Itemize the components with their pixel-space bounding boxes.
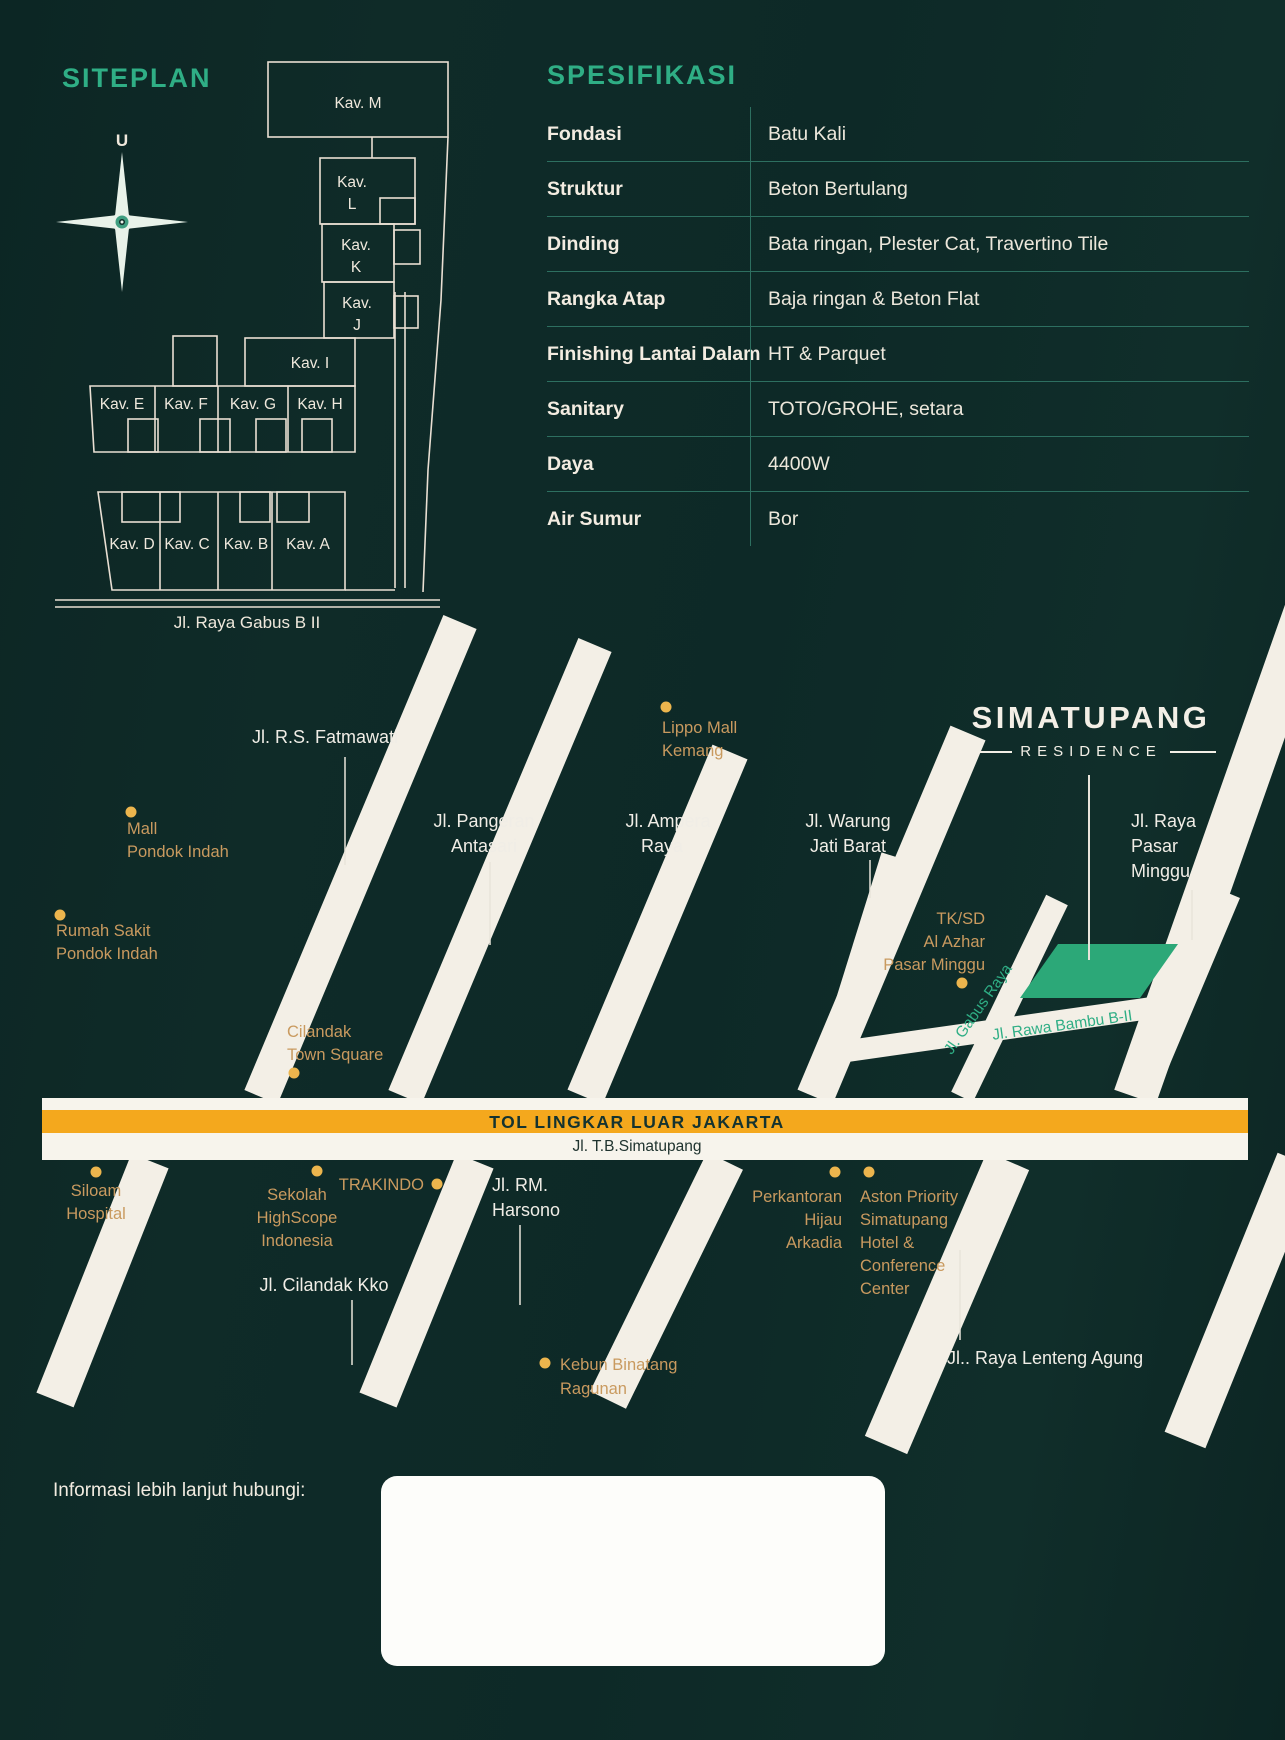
- spec-row-dinding: Dinding Bata ringan, Plester Cat, Traver…: [547, 217, 1249, 272]
- spec-label: Struktur: [547, 178, 750, 201]
- poi-dot-tksd: [957, 978, 968, 989]
- spec-section: SPESIFIKASI Fondasi Batu Kali Struktur B…: [547, 60, 1249, 546]
- label-pasar-minggu-1: Jl. Raya: [1131, 811, 1197, 831]
- label-highscope-2: HighScope: [257, 1209, 338, 1227]
- plot-label-e: Kav. E: [100, 396, 145, 413]
- plot-label-k2: K: [351, 259, 362, 276]
- spec-label: Sanitary: [547, 398, 750, 421]
- spec-row-air-sumur: Air Sumur Bor: [547, 492, 1249, 546]
- brand-name: SIMATUPANG: [952, 700, 1230, 736]
- spec-value: Bata ringan, Plester Cat, Travertino Til…: [750, 217, 1249, 271]
- label-perkantoran-3: Arkadia: [786, 1234, 843, 1252]
- label-tksd-2: Al Azhar: [924, 933, 986, 951]
- label-antasari-1: Jl. Pangeran: [433, 811, 534, 831]
- poi-dot-highscope: [312, 1166, 323, 1177]
- spec-row-fondasi: Fondasi Batu Kali: [547, 107, 1249, 162]
- toll-road-street: Jl. T.B.Simatupang: [573, 1138, 702, 1155]
- road-cilandak-kko: [378, 1161, 475, 1400]
- poi-dot-perkantoran: [830, 1167, 841, 1178]
- label-perkantoran-1: Perkantoran: [752, 1188, 842, 1206]
- spec-label: Dinding: [547, 233, 750, 256]
- label-harsono-2: Harsono: [492, 1200, 560, 1220]
- brand-dash-right: [1170, 751, 1216, 753]
- brand-dash-left: [966, 751, 1012, 753]
- label-antasari-2: Antasari: [451, 836, 517, 856]
- label-siloam-2: Hospital: [66, 1205, 126, 1223]
- compass-north-label: U: [116, 131, 128, 150]
- poi-dot-rs-pondok-indah: [55, 910, 66, 921]
- spec-value: 4400W: [750, 437, 1249, 491]
- label-aston-4: Conference: [860, 1257, 945, 1275]
- spec-table: Fondasi Batu Kali Struktur Beton Bertula…: [547, 107, 1249, 546]
- spec-row-sanitary: Sanitary TOTO/GROHE, setara: [547, 382, 1249, 437]
- poi-dot-lippo: [661, 702, 672, 713]
- label-rs-pi-1: Rumah Sakit: [56, 922, 151, 940]
- spec-value: Beton Bertulang: [750, 162, 1249, 216]
- spec-label: Daya: [547, 453, 750, 476]
- spec-title: SPESIFIKASI: [547, 60, 1249, 91]
- toll-road-name: TOL LINGKAR LUAR JAKARTA: [489, 1112, 785, 1132]
- spec-label: Finishing Lantai Dalam: [547, 343, 750, 366]
- poi-dot-aston: [864, 1167, 875, 1178]
- plot-label-h: Kav. H: [297, 396, 342, 413]
- label-mall-pi-2: Pondok Indah: [127, 843, 229, 861]
- map-roads-lower: [55, 1161, 1285, 1445]
- spec-value: Bor: [750, 492, 1249, 546]
- label-lenteng-agung: Jl.. Raya Lenteng Agung: [947, 1348, 1143, 1368]
- plot-label-l2: L: [348, 196, 357, 213]
- road-lower-east: [1185, 1161, 1285, 1440]
- label-aston-5: Center: [860, 1280, 910, 1298]
- poi-dot-cilandak-town-square: [289, 1068, 300, 1079]
- spec-row-finishing: Finishing Lantai Dalam HT & Parquet: [547, 327, 1249, 382]
- brand-subtitle-row: RESIDENCE: [952, 743, 1230, 760]
- poi-dot-kebun-binatang: [540, 1358, 551, 1369]
- label-pasar-minggu-3: Minggu: [1131, 861, 1190, 881]
- label-fatmawati: Jl. R.S. Fatmawati: [252, 727, 398, 747]
- label-tksd-3: Pasar Minggu: [883, 956, 985, 974]
- plot-label-a: Kav. A: [286, 536, 330, 553]
- plot-label-l1: Kav.: [337, 174, 367, 191]
- plot-label-b: Kav. B: [224, 536, 269, 553]
- spec-value: TOTO/GROHE, setara: [750, 382, 1249, 436]
- label-kebun-1: Kebun Binatang: [560, 1356, 677, 1374]
- label-highscope-1: Sekolah: [267, 1186, 327, 1204]
- siteplan-drawing: [55, 62, 448, 607]
- siteplan-title: SITEPLAN: [62, 63, 212, 94]
- spec-value: Baja ringan & Beton Flat: [750, 272, 1249, 326]
- label-cts-1: Cilandak: [287, 1023, 352, 1041]
- contact-blank-box: [381, 1476, 885, 1666]
- plot-label-i: Kav. I: [291, 355, 329, 372]
- brand-subtitle: RESIDENCE: [1012, 743, 1170, 760]
- siteplan-labels: Kav. M Kav. L Kav. K Kav. J Kav. I Kav. …: [100, 95, 382, 632]
- label-tksd-1: TK/SD: [936, 910, 985, 928]
- spec-row-daya: Daya 4400W: [547, 437, 1249, 492]
- plot-label-k1: Kav.: [341, 237, 371, 254]
- siteplan-right-boundary: [423, 137, 448, 592]
- label-cts-2: Town Square: [287, 1046, 383, 1064]
- plot-label-f: Kav. F: [164, 396, 208, 413]
- spec-label: Air Sumur: [547, 508, 750, 531]
- contact-label: Informasi lebih lanjut hubungi:: [53, 1480, 305, 1502]
- poi-dot-trakindo: [432, 1179, 443, 1190]
- brand-logo: SIMATUPANG RESIDENCE: [952, 700, 1230, 760]
- spec-value: HT & Parquet: [750, 327, 1249, 381]
- plot-label-d: Kav. D: [109, 536, 154, 553]
- label-aston-1: Aston Priority: [860, 1188, 959, 1206]
- spec-label: Rangka Atap: [547, 288, 750, 311]
- spec-row-rangka-atap: Rangka Atap Baja ringan & Beton Flat: [547, 272, 1249, 327]
- label-harsono-1: Jl. RM.: [492, 1175, 548, 1195]
- label-cilandak-kko: Jl. Cilandak Kko: [259, 1275, 388, 1295]
- label-mall-pi-1: Mall: [127, 820, 157, 838]
- label-aston-2: Simatupang: [860, 1211, 948, 1229]
- plot-label-g: Kav. G: [230, 396, 276, 413]
- label-kebun-2: Ragunan: [560, 1380, 627, 1398]
- label-highscope-3: Indonesia: [261, 1232, 333, 1250]
- label-perkantoran-2: Hijau: [804, 1211, 842, 1229]
- compass-icon: U: [56, 131, 188, 292]
- label-warung-2: Jati Barat: [810, 836, 886, 856]
- plot-label-j1: Kav.: [342, 295, 372, 312]
- spec-value: Batu Kali: [750, 107, 1249, 161]
- plot-l-outline: [320, 158, 415, 224]
- spec-row-struktur: Struktur Beton Bertulang: [547, 162, 1249, 217]
- label-warung-1: Jl. Warung: [805, 811, 890, 831]
- label-ampera-1: Jl. Ampera: [625, 811, 711, 831]
- label-rs-pi-2: Pondok Indah: [56, 945, 158, 963]
- plot-label-j2: J: [353, 317, 361, 334]
- spec-label: Fondasi: [547, 123, 750, 146]
- label-ampera-2: Raya: [641, 836, 684, 856]
- poi-dot-siloam: [91, 1167, 102, 1178]
- label-lippo-1: Lippo Mall: [662, 719, 737, 737]
- label-trakindo: TRAKINDO: [339, 1176, 424, 1194]
- plot-label-c: Kav. C: [164, 536, 209, 553]
- road-ampera: [585, 752, 730, 1097]
- label-siloam-1: Siloam: [71, 1182, 121, 1200]
- poi-dot-mall-pondok-indah: [126, 807, 137, 818]
- label-lippo-2: Kemang: [662, 742, 723, 760]
- plot-label-m: Kav. M: [334, 95, 381, 112]
- label-aston-3: Hotel &: [860, 1234, 914, 1252]
- siteplan-street-label: Jl. Raya Gabus B II: [174, 613, 320, 632]
- label-pasar-minggu-2: Pasar: [1131, 836, 1178, 856]
